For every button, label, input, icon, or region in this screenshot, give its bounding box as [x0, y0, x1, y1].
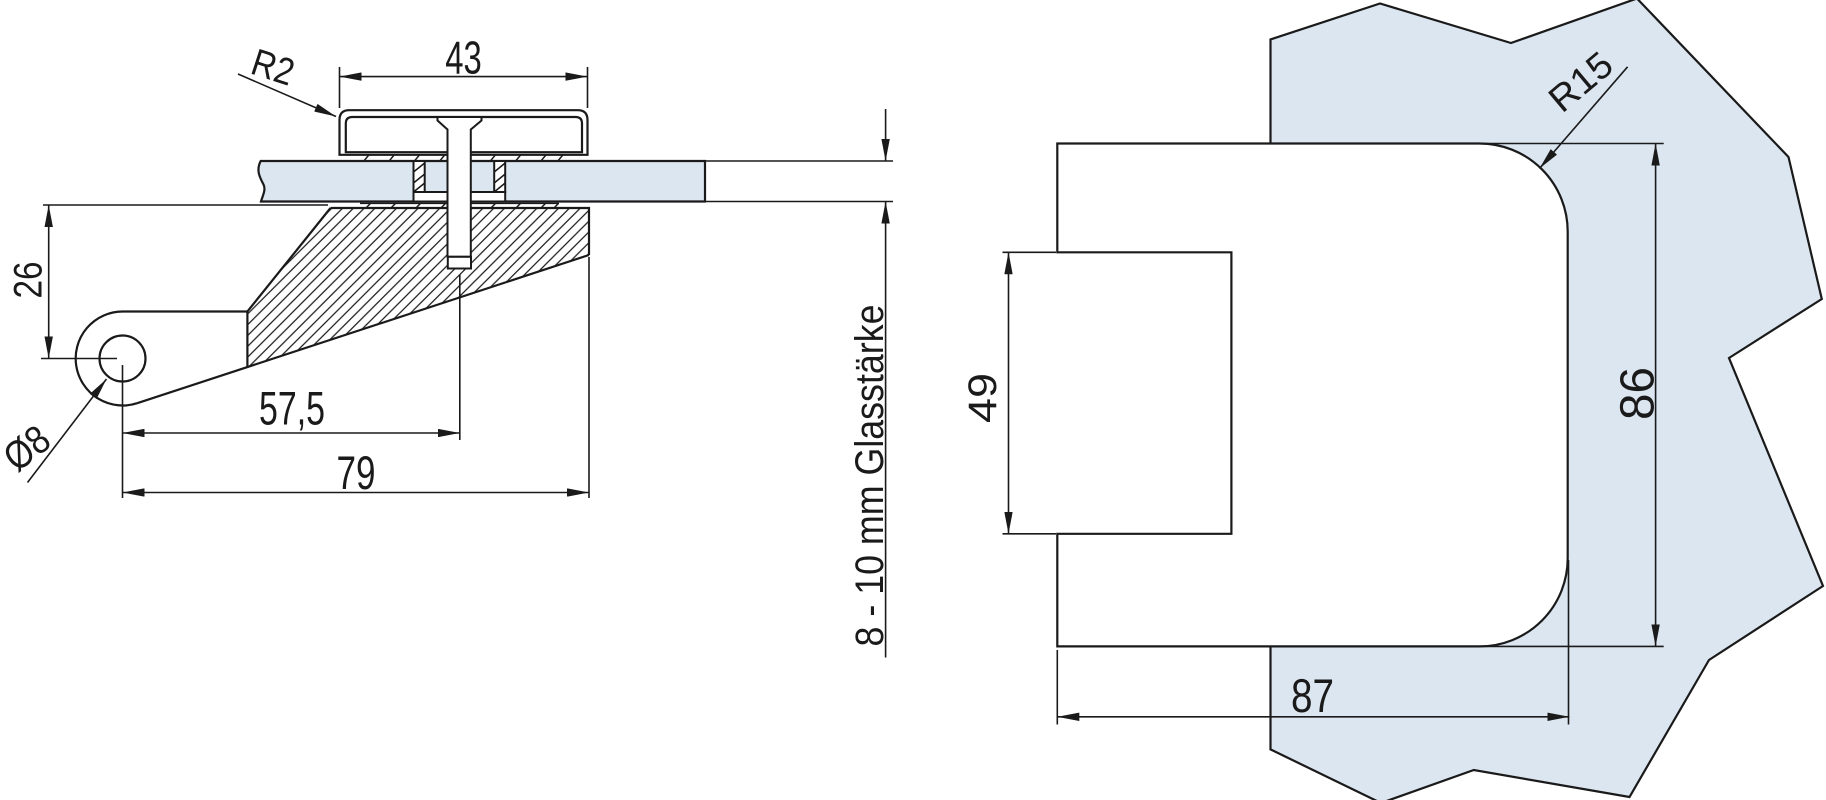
svg-text:86: 86 — [1612, 367, 1665, 420]
svg-text:49: 49 — [961, 373, 1005, 423]
svg-text:26: 26 — [7, 262, 51, 299]
svg-text:43: 43 — [445, 32, 482, 84]
svg-text:87: 87 — [1291, 669, 1334, 722]
svg-text:57,5: 57,5 — [259, 382, 325, 435]
svg-text:8 - 10 mm Glasstärke: 8 - 10 mm Glasstärke — [848, 305, 892, 647]
svg-text:79: 79 — [337, 446, 376, 499]
